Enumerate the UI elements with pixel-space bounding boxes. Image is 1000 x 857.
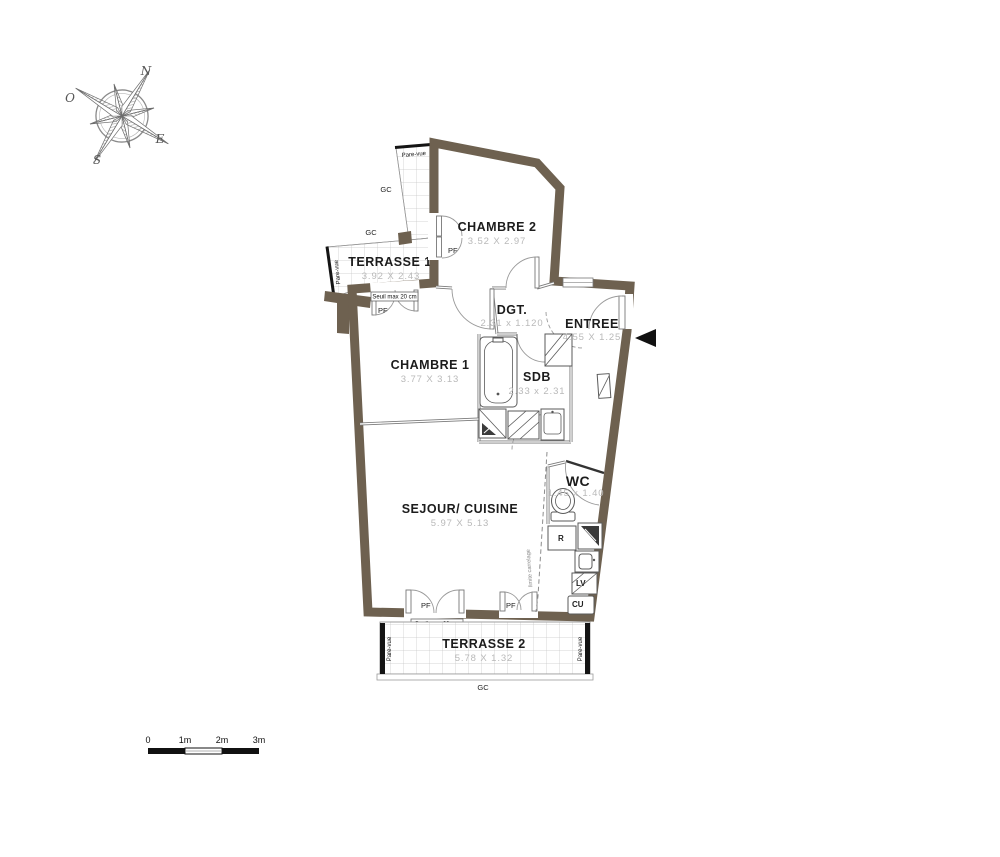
chambre2-dims: 3.52 X 2.97 xyxy=(468,236,527,247)
gc-label-2: GC xyxy=(365,228,377,237)
terrasse2-dims: 5.78 X 1.32 xyxy=(455,653,514,664)
sejour-label: SEJOUR/ CUISINE xyxy=(402,502,519,516)
sdb-label: SDB xyxy=(523,370,551,384)
kitchen-units: R LV CU xyxy=(548,523,602,614)
wc-label: WC xyxy=(566,473,590,489)
pf-label-sejour-left: PF xyxy=(421,601,431,610)
terrasse2-label: TERRASSE 2 xyxy=(442,637,526,651)
terrasse-2: Pare-vue Pare-vue TERRASSE 2 5.78 X 1.32… xyxy=(377,622,593,692)
dgt-label: DGT. xyxy=(497,303,527,317)
door-sdb xyxy=(517,334,545,362)
door-pf-sejour-right: PF xyxy=(499,592,538,618)
wc-dims: 1.45 x 1.40 xyxy=(548,488,605,499)
terrasse1-wall-stub xyxy=(324,291,371,334)
dishwasher-label: LV xyxy=(576,579,586,588)
sdb-sink xyxy=(541,409,564,440)
compass-rose: N O E S xyxy=(48,42,196,190)
door-pf-terrasse1: Seuil max 20 cm PF xyxy=(370,280,420,315)
chambre1-label: CHAMBRE 1 xyxy=(391,358,470,372)
pf-label-chambre2: PF xyxy=(448,246,458,255)
chambre1-dims: 3.77 X 3.13 xyxy=(401,374,460,385)
scale-tick-2m: 2m xyxy=(216,735,229,745)
dgt-dims: 2.31 x 1.120 xyxy=(480,318,543,329)
compass-north-label: N xyxy=(140,64,152,78)
pare-vue-screen-terrasse2-right xyxy=(585,623,590,674)
cooktop-label: CU xyxy=(572,600,584,609)
terrasse1-wall-block xyxy=(398,231,412,245)
terrace-top-arm: Pare-vue GC GC xyxy=(365,145,431,241)
pf-label-sejour-right: PF xyxy=(506,601,516,610)
floor-plan-svg: N O E S Pare-vue GC GC Pare-vue TERRASSE… xyxy=(0,0,1000,857)
washing-machine xyxy=(508,411,539,439)
pare-vue-screen-terrasse2-left xyxy=(380,623,385,674)
scale-tick-0: 0 xyxy=(145,735,150,745)
scale-tick-1m: 1m xyxy=(179,735,192,745)
compass-east-label: E xyxy=(155,132,165,146)
sejour-dims: 5.97 X 5.13 xyxy=(431,518,490,529)
gc-label-1: GC xyxy=(380,185,392,194)
door-chambre2 xyxy=(506,257,539,288)
washbasin xyxy=(479,409,506,438)
scale-tick-3m: 3m xyxy=(253,735,266,745)
limite-carrelage-label: limite carrelage xyxy=(526,549,535,587)
pare-vue-label-terrasse2-right: Pare-vue xyxy=(578,636,584,661)
electrical-panel xyxy=(597,374,611,399)
window-entree xyxy=(563,278,593,287)
seuil-label-terrasse1: Seuil max 20 cm xyxy=(372,295,416,301)
tile-limit-line xyxy=(536,452,547,612)
entree-label: ENTREE xyxy=(565,317,619,331)
scale-bar: 0 1m 2m 3m xyxy=(145,735,265,754)
floor-plan-page: N O E S Pare-vue GC GC Pare-vue TERRASSE… xyxy=(0,0,1000,857)
sdb-dims: 2.33 x 2.31 xyxy=(509,386,566,397)
entree-dims: 4.55 X 1.25 xyxy=(563,332,622,343)
entry-direction-arrow xyxy=(635,329,656,347)
pare-vue-label-terrasse2-left: Pare-vue xyxy=(387,636,393,661)
gc-label-3: GC xyxy=(477,683,489,692)
pf-label-terrasse1: PF xyxy=(378,306,388,315)
compass-west-label: O xyxy=(65,91,75,105)
terrasse1-label: TERRASSE 1 xyxy=(348,255,432,269)
chambre2-label: CHAMBRE 2 xyxy=(458,220,537,234)
compass-south-label: S xyxy=(93,153,101,167)
fridge-label: R xyxy=(558,534,564,543)
